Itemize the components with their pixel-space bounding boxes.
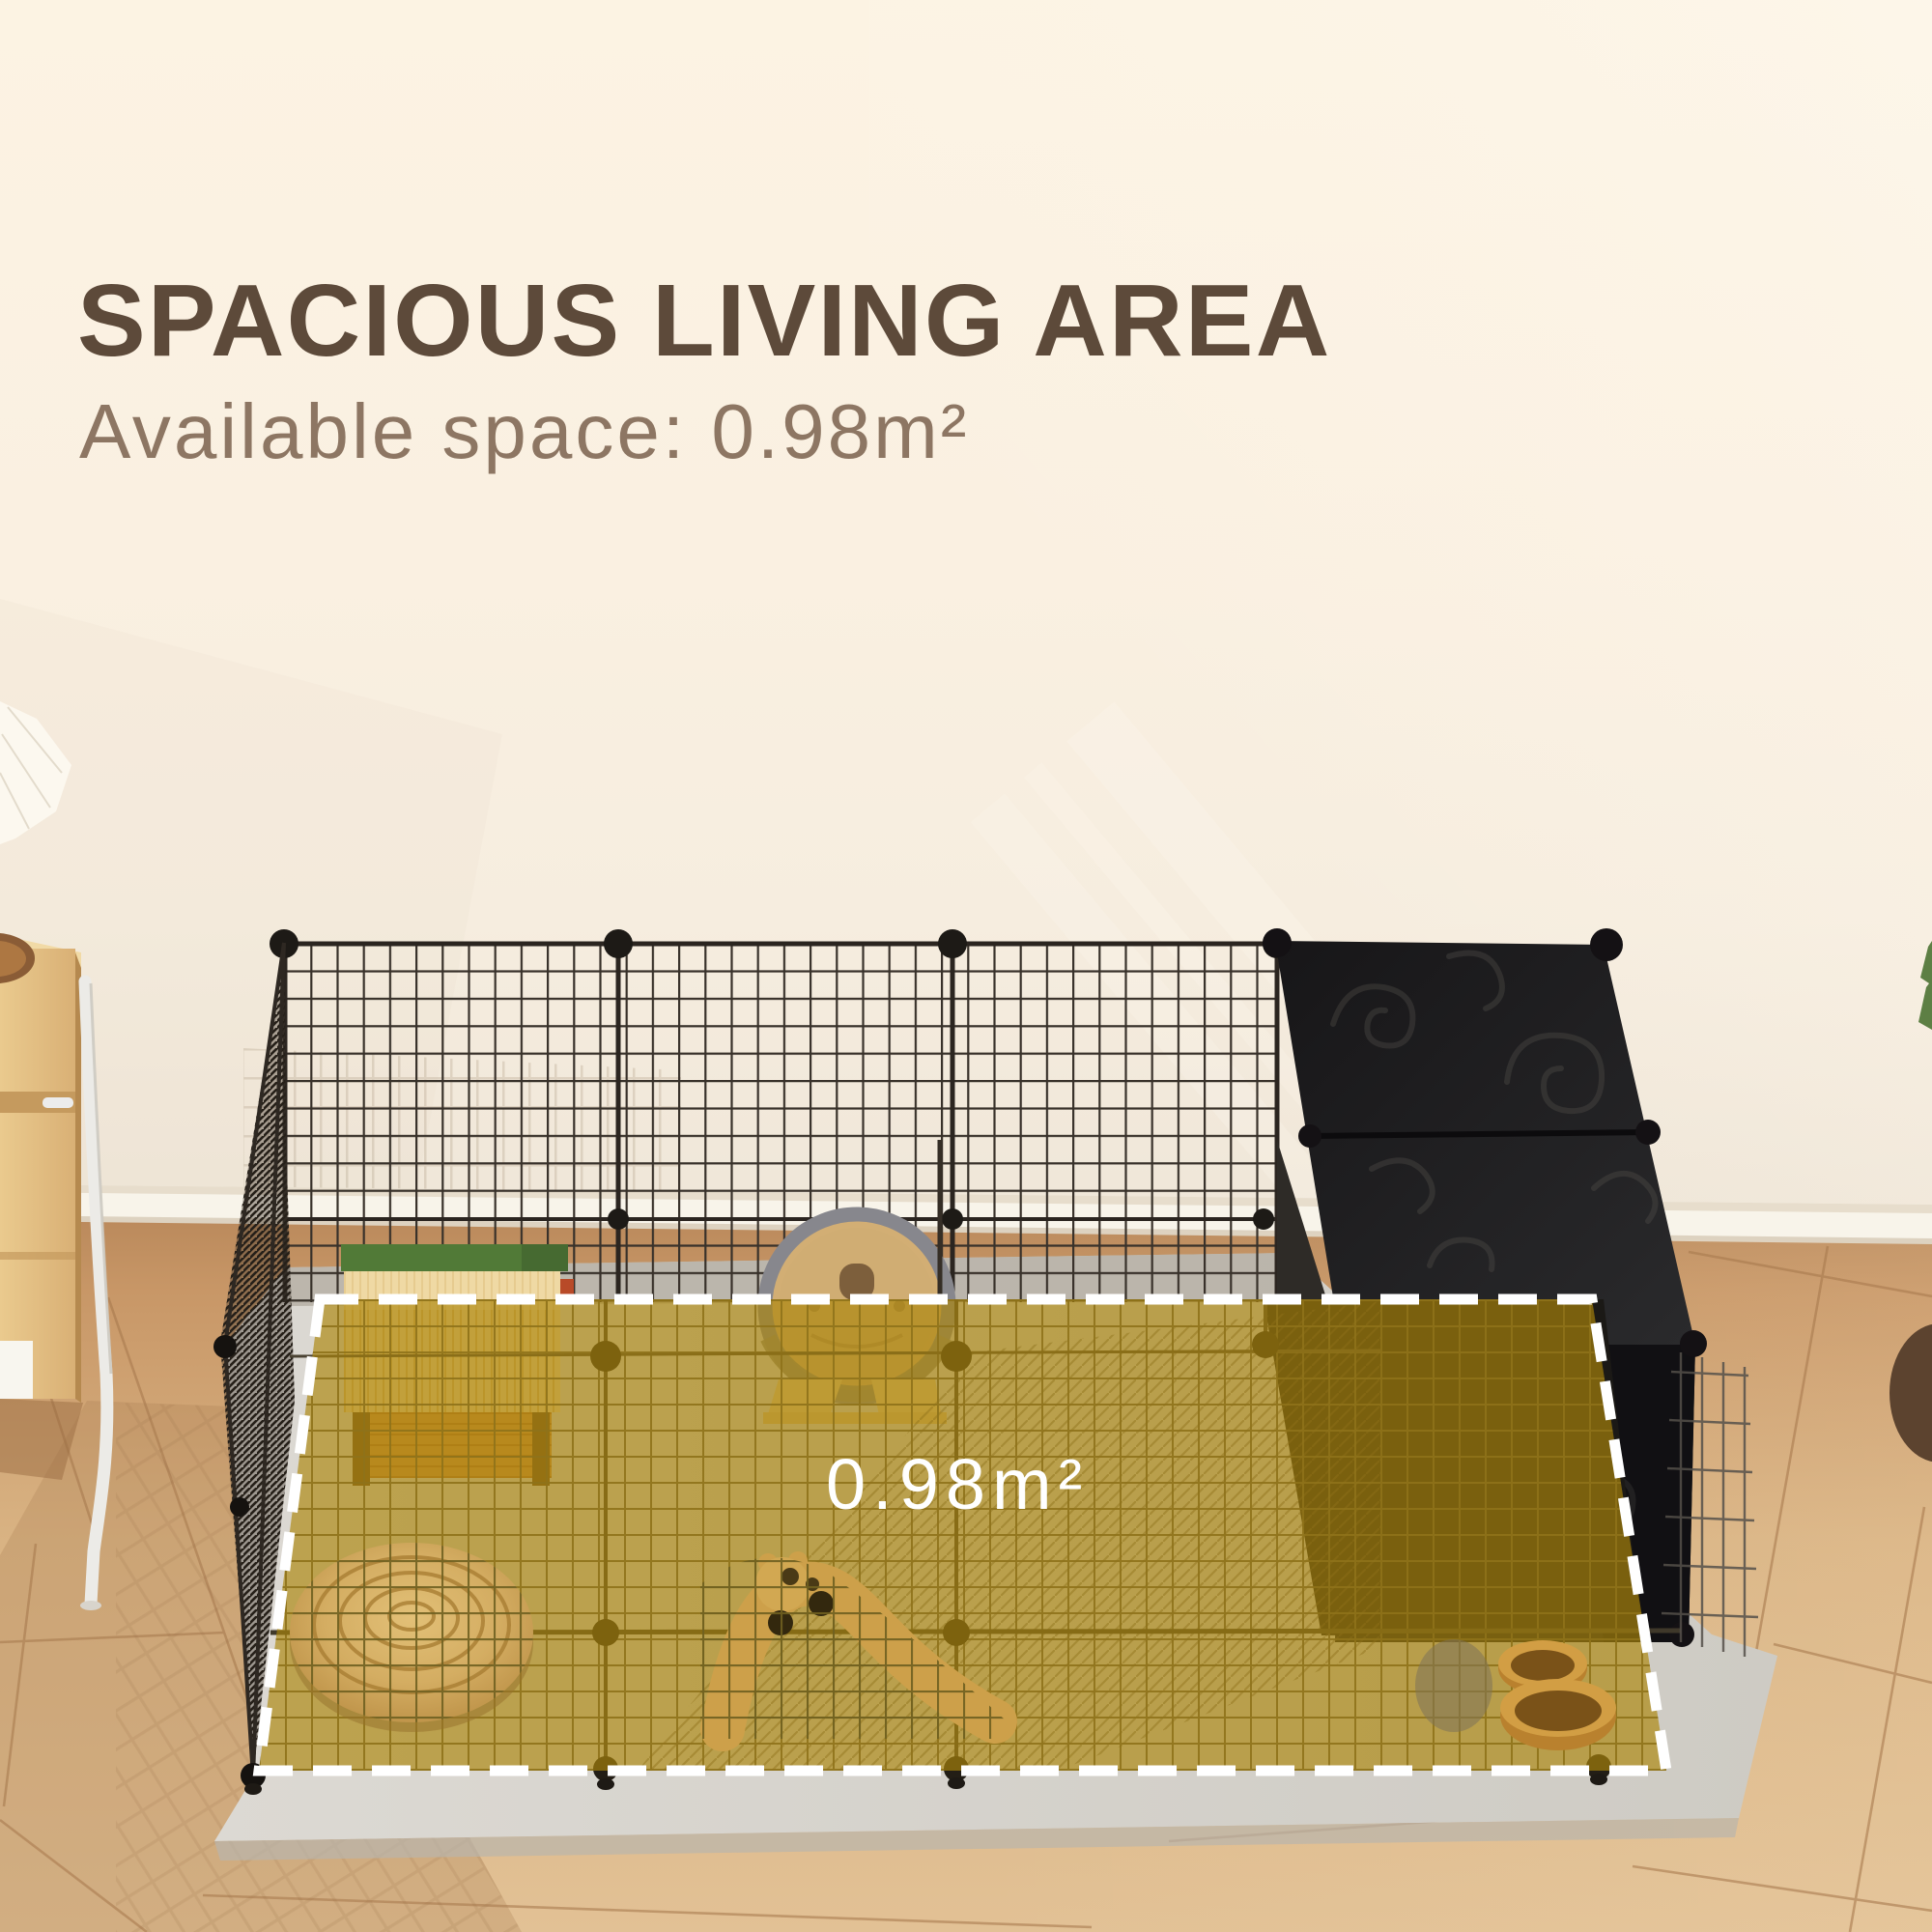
svg-text:0.98m²: 0.98m²	[826, 1444, 1089, 1524]
svg-text:Available space: 0.98m²: Available space: 0.98m²	[79, 388, 969, 474]
svg-text:SPACIOUS LIVING AREA: SPACIOUS LIVING AREA	[77, 264, 1331, 378]
